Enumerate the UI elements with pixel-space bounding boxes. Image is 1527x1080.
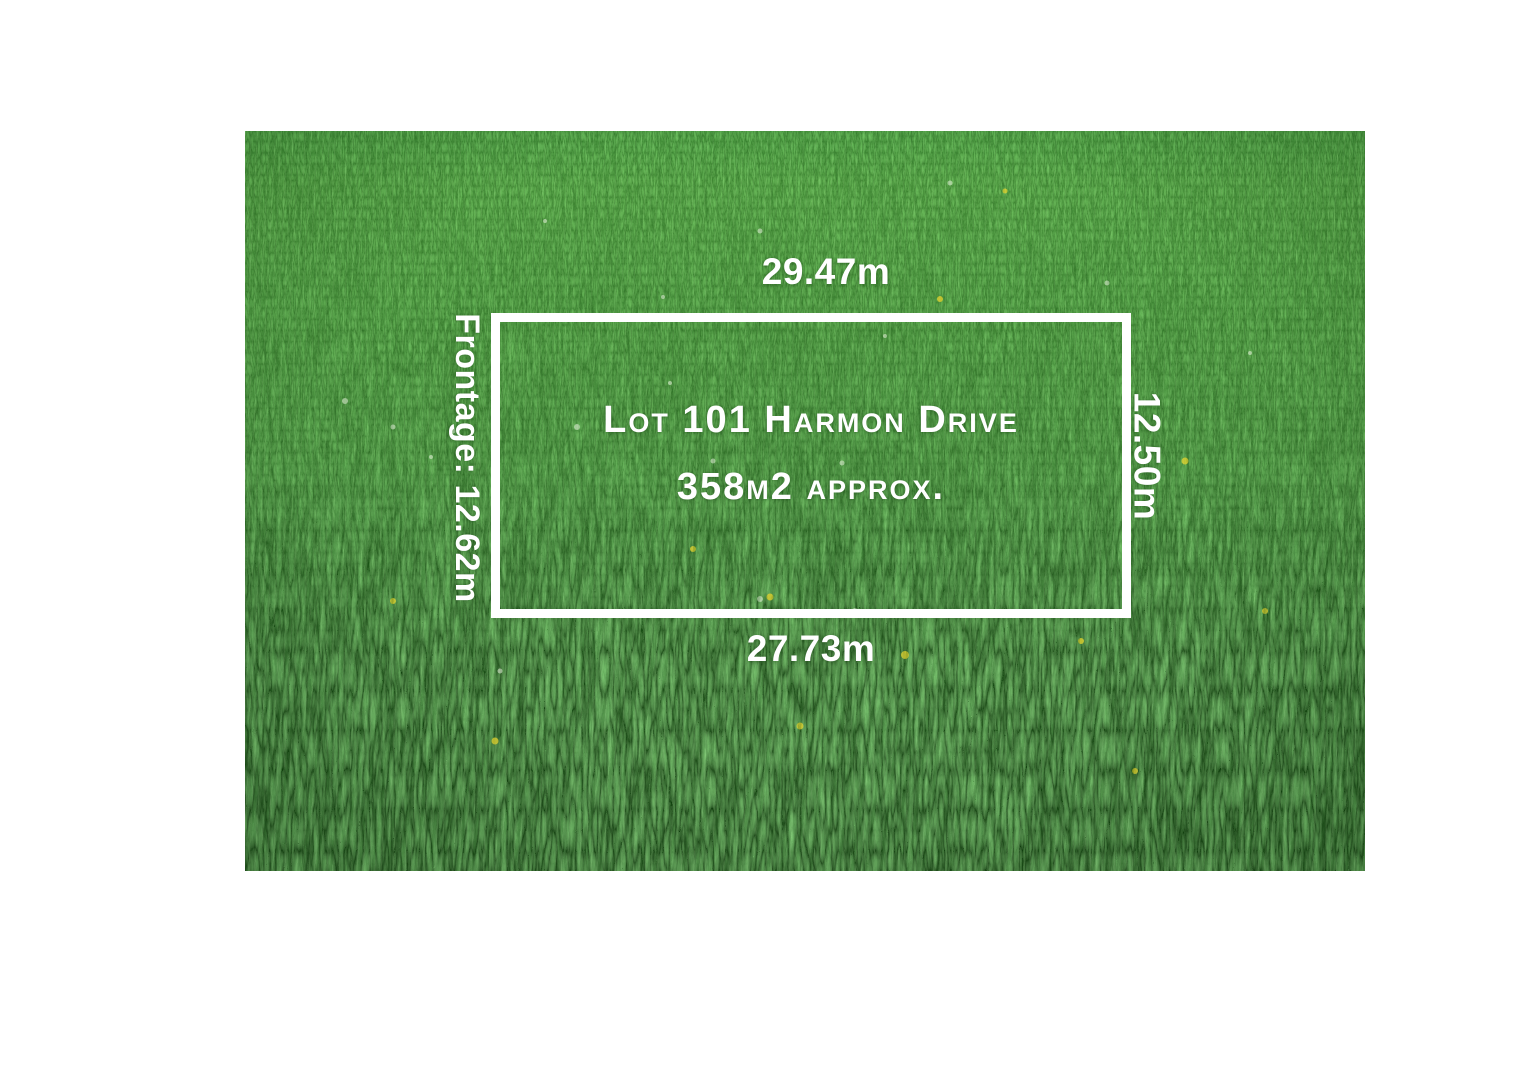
- dimension-label-frontage-left: Frontage: 12.62m: [450, 313, 484, 603]
- lot-title: Lot 101 Harmon Drive: [491, 398, 1131, 442]
- dimension-label-top: 29.47m: [506, 253, 1146, 290]
- grass-field-photo: 29.47m Frontage: 12.62m 12.50m 27.73m Lo…: [245, 131, 1365, 871]
- dimension-label-bottom: 27.73m: [491, 630, 1131, 667]
- dimension-label-right: 12.50m: [1129, 392, 1166, 521]
- lot-area: 358m2 approx.: [491, 465, 1131, 509]
